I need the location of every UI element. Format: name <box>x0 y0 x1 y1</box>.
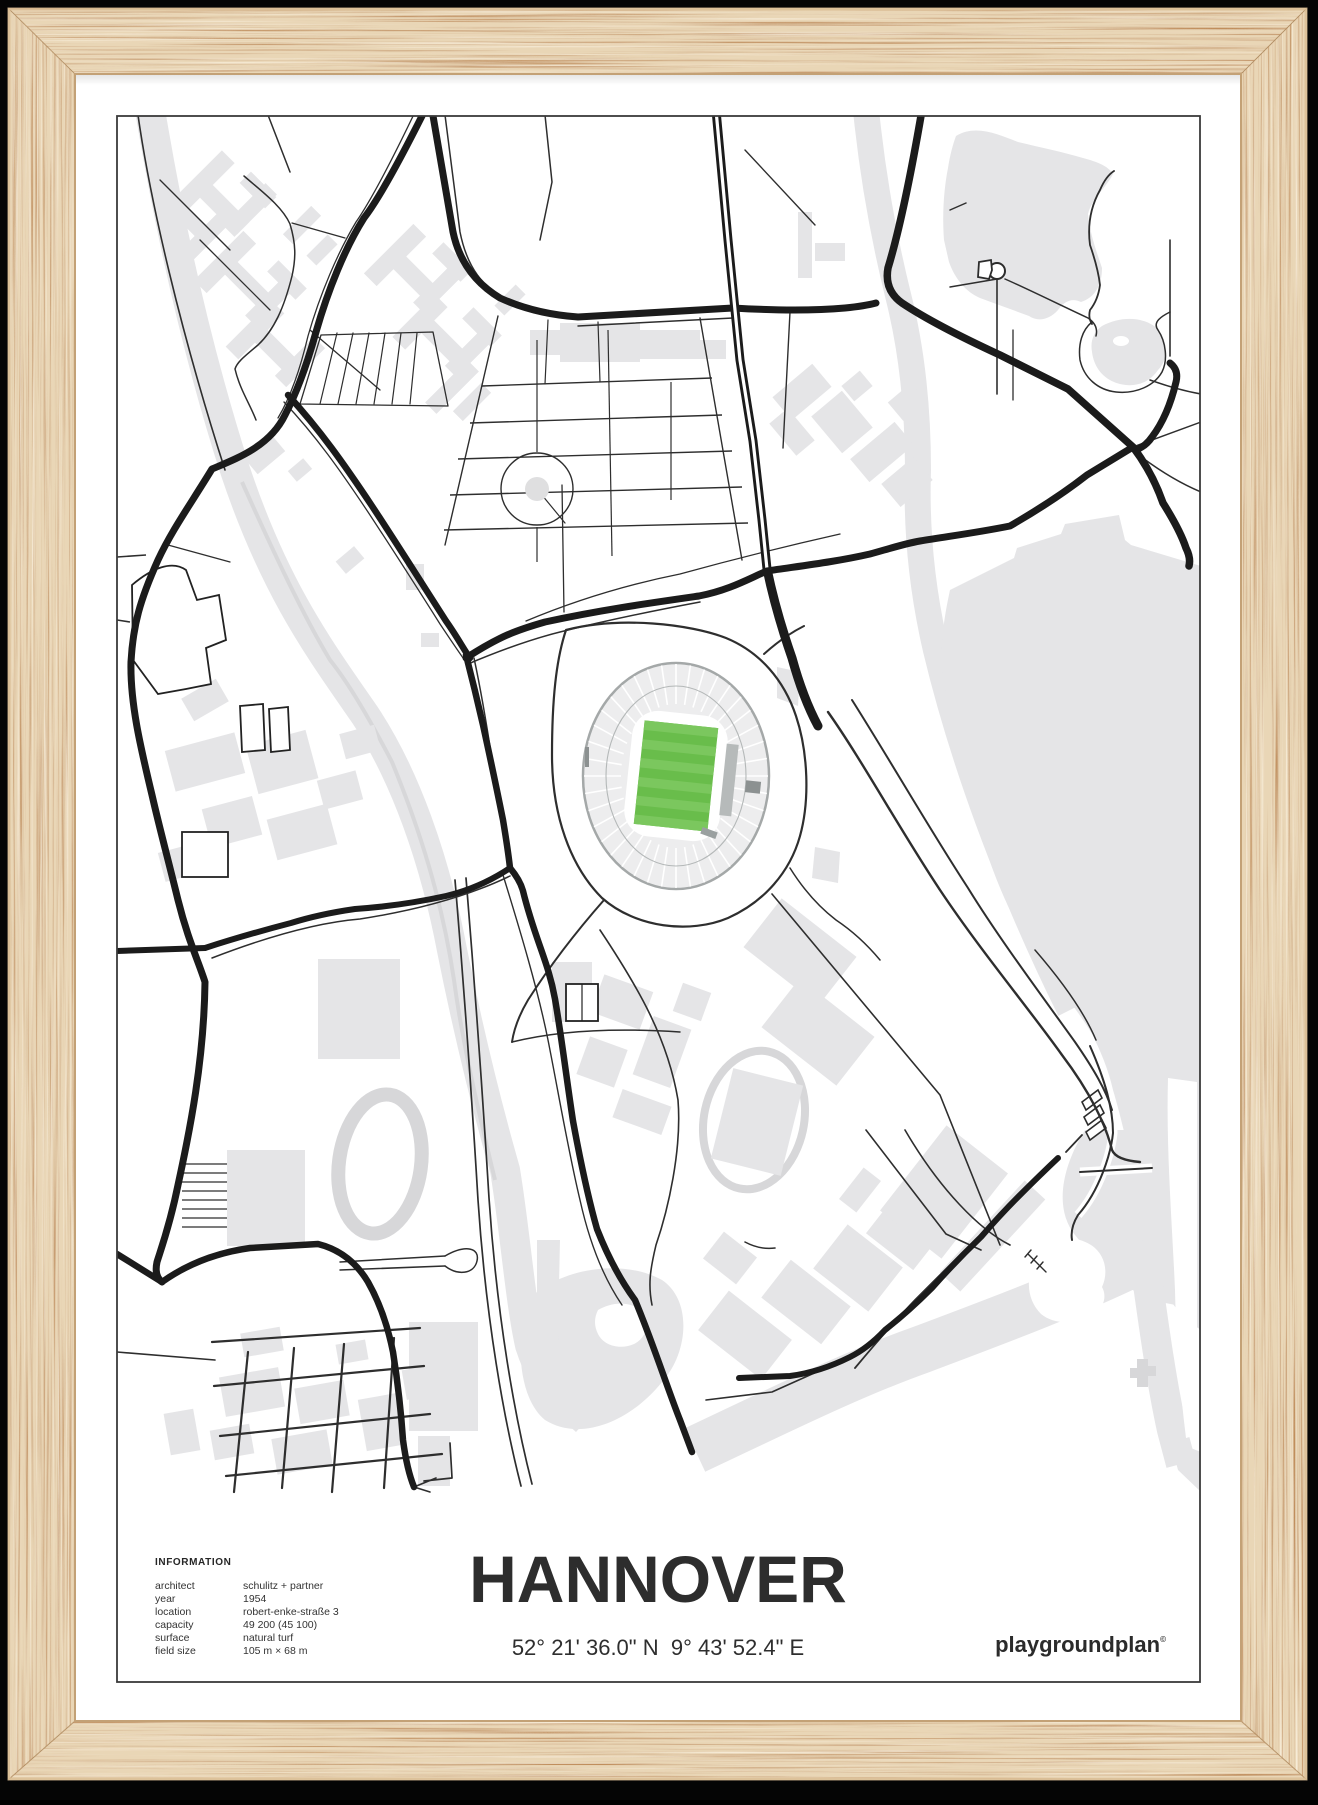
svg-text:schulitz + partner: schulitz + partner <box>243 1580 324 1592</box>
svg-text:capacity: capacity <box>155 1619 194 1631</box>
svg-text:52° 21' 36.0" N 9° 43' 52.4": 52° 21' 36.0" N 9° 43' 52.4" E <box>512 1635 804 1660</box>
svg-text:architect: architect <box>155 1580 195 1592</box>
svg-text:year: year <box>155 1593 176 1605</box>
svg-text:105 m × 68 m: 105 m × 68 m <box>243 1645 308 1657</box>
svg-text:location: location <box>155 1606 191 1618</box>
svg-text:playgroundplan©: playgroundplan© <box>995 1632 1166 1657</box>
svg-text:natural turf: natural turf <box>243 1632 293 1644</box>
svg-text:HANNOVER: HANNOVER <box>469 1542 847 1616</box>
svg-text:surface: surface <box>155 1632 190 1644</box>
svg-text:1954: 1954 <box>243 1593 267 1605</box>
svg-text:INFORMATION: INFORMATION <box>155 1557 231 1568</box>
svg-text:robert-enke-straße 3: robert-enke-straße 3 <box>243 1606 339 1618</box>
svg-text:49 200 (45 100): 49 200 (45 100) <box>243 1619 317 1631</box>
svg-text:field size: field size <box>155 1645 196 1657</box>
